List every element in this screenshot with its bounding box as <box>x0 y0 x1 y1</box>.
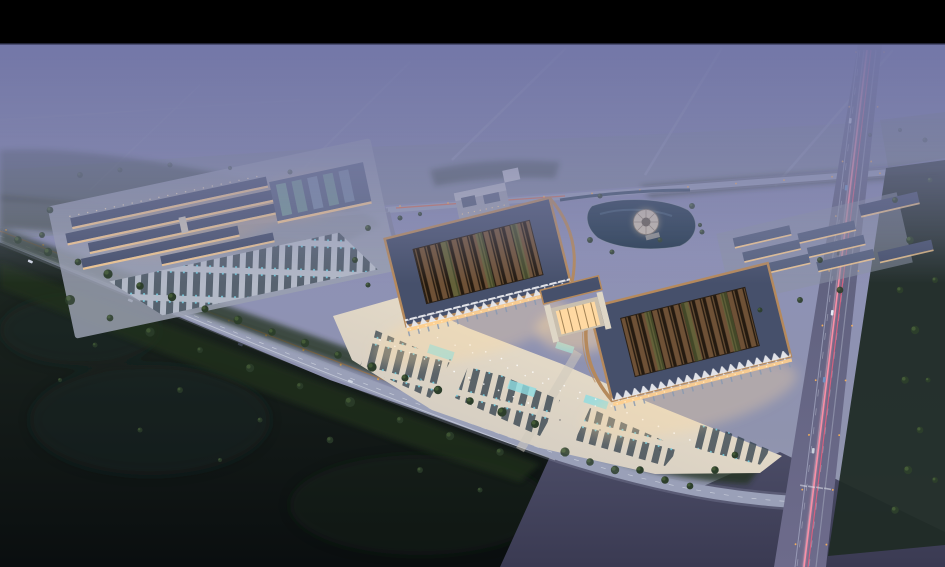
letterbox-top <box>0 0 945 44</box>
aerial-render <box>0 0 945 567</box>
render-canvas <box>0 0 945 567</box>
fog-overlay <box>0 44 945 284</box>
letterbox-edge <box>0 43 945 45</box>
